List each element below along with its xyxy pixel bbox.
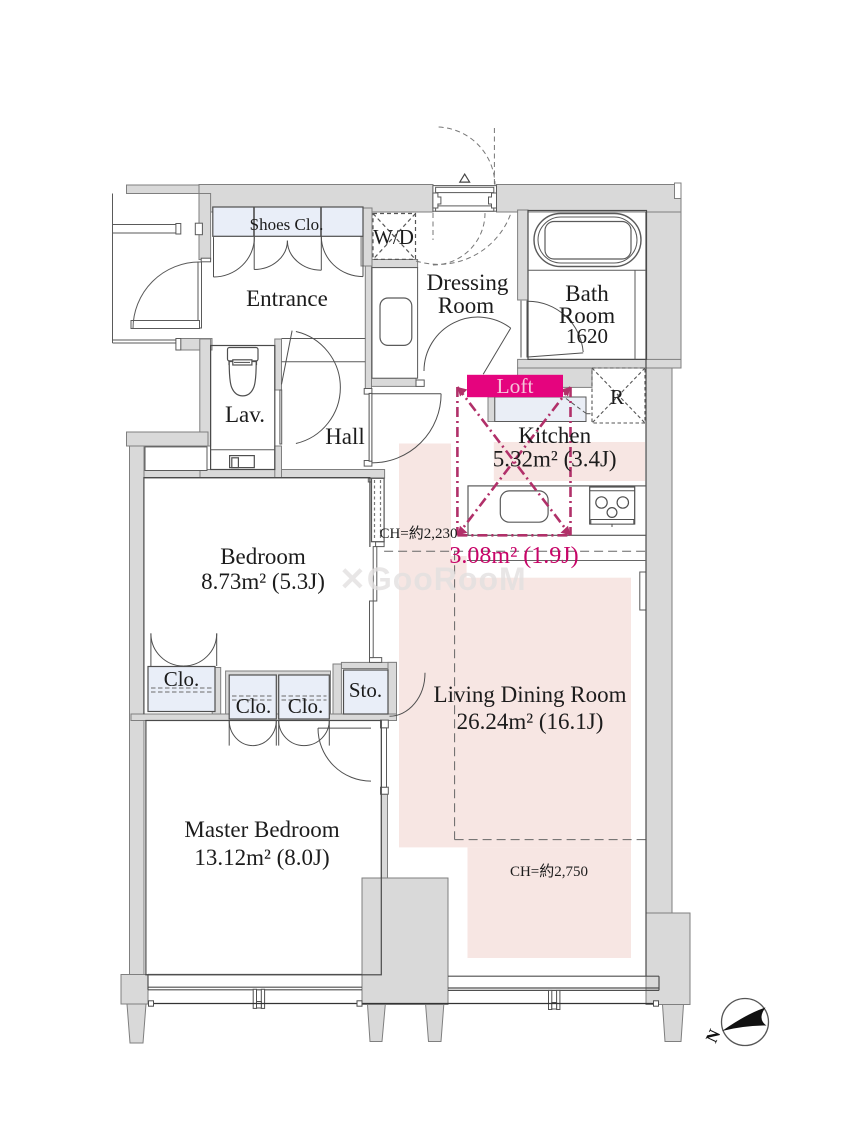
svg-text:Kitchen: Kitchen bbox=[518, 423, 591, 448]
svg-text:Bedroom: Bedroom bbox=[220, 544, 306, 569]
svg-text:1620: 1620 bbox=[566, 324, 608, 348]
svg-text:Clo.: Clo. bbox=[236, 694, 272, 718]
svg-text:Loft: Loft bbox=[496, 374, 533, 398]
svg-text:5.32m² (3.4J): 5.32m² (3.4J) bbox=[493, 447, 617, 472]
svg-text:CH=約2,750: CH=約2,750 bbox=[510, 863, 588, 880]
svg-text:Sto.: Sto. bbox=[349, 678, 382, 702]
svg-text:R: R bbox=[610, 385, 624, 409]
svg-text:CH=約2,230: CH=約2,230 bbox=[379, 525, 457, 542]
svg-text:13.12m² (8.0J): 13.12m² (8.0J) bbox=[194, 845, 329, 870]
svg-text:Clo.: Clo. bbox=[164, 667, 200, 691]
svg-text:✕GooRooM: ✕GooRooM bbox=[339, 561, 527, 597]
svg-text:Hall: Hall bbox=[325, 424, 365, 449]
svg-text:Clo.: Clo. bbox=[288, 694, 324, 718]
svg-text:Living Dining Room: Living Dining Room bbox=[434, 682, 627, 707]
svg-text:Dressing: Dressing bbox=[427, 270, 509, 295]
svg-text:Master Bedroom: Master Bedroom bbox=[184, 817, 339, 842]
svg-text:Lav.: Lav. bbox=[225, 402, 265, 427]
svg-text:Shoes Clo.: Shoes Clo. bbox=[250, 215, 324, 234]
svg-text:W/D: W/D bbox=[373, 225, 414, 249]
svg-text:Room: Room bbox=[438, 293, 494, 318]
svg-text:8.73m² (5.3J): 8.73m² (5.3J) bbox=[201, 569, 325, 594]
svg-text:26.24m² (16.1J): 26.24m² (16.1J) bbox=[457, 709, 604, 734]
svg-text:Entrance: Entrance bbox=[246, 286, 328, 311]
